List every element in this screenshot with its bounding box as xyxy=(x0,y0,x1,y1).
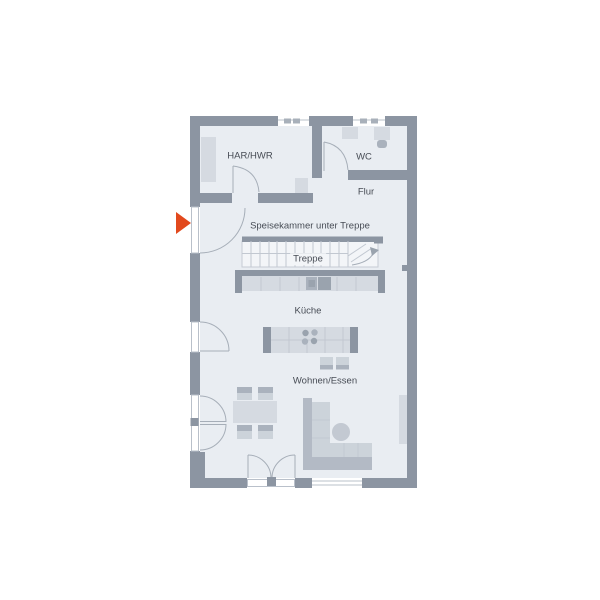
dining-table xyxy=(233,401,277,423)
appliance xyxy=(318,277,331,290)
cupboard xyxy=(201,137,216,182)
room-label-wc: WC xyxy=(356,152,372,162)
toilet-bowl xyxy=(377,140,387,148)
room-label-wohnen-essen: Wohnen/Essen xyxy=(293,376,357,386)
sideboard xyxy=(399,395,407,444)
room-label-kueche: Küche xyxy=(295,306,322,316)
coffee-table xyxy=(332,423,350,441)
washer xyxy=(295,178,308,193)
toilet-tank xyxy=(374,127,390,140)
room-label-treppe: Treppe xyxy=(290,253,326,265)
entrance-arrow-icon xyxy=(176,212,191,234)
room-label-har-hwr: HAR/HWR xyxy=(227,151,272,161)
kitchen-counter xyxy=(235,270,385,293)
kitchen-island xyxy=(263,327,358,353)
room-label-flur: Flur xyxy=(358,187,374,197)
floor-plan-page: HAR/HWR WC Flur Speisekammer unter Trepp… xyxy=(0,0,600,600)
washbasin xyxy=(342,127,358,139)
floor-plan-drawing xyxy=(0,0,600,600)
room-label-speisekammer: Speisekammer unter Treppe xyxy=(250,221,370,231)
